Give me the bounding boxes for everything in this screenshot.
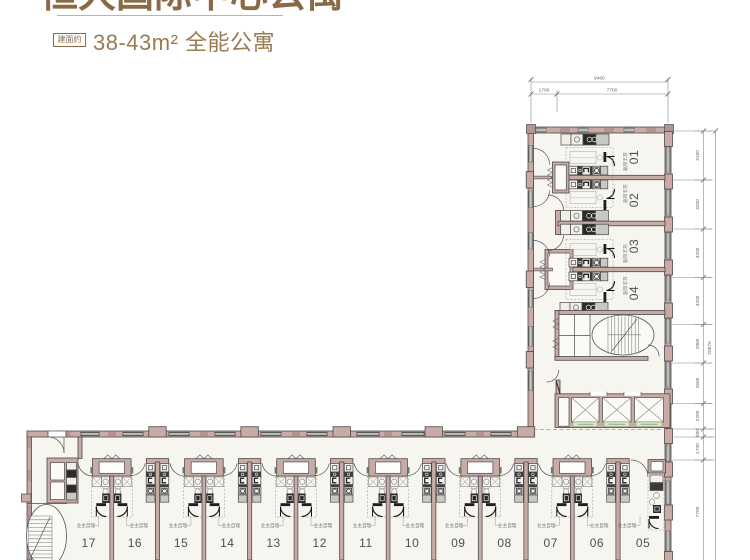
svg-text:07: 07 bbox=[544, 536, 558, 550]
svg-text:业主自理: 业主自理 bbox=[445, 522, 464, 529]
svg-text:业主自理: 业主自理 bbox=[77, 522, 96, 529]
svg-text:业主自理: 业主自理 bbox=[622, 276, 629, 295]
svg-text:1700: 1700 bbox=[695, 443, 701, 454]
svg-text:02: 02 bbox=[627, 193, 641, 207]
svg-text:7700: 7700 bbox=[695, 506, 701, 517]
svg-text:3200: 3200 bbox=[695, 247, 701, 258]
svg-text:13: 13 bbox=[266, 536, 280, 550]
svg-text:2200: 2200 bbox=[695, 410, 701, 421]
svg-text:14: 14 bbox=[220, 536, 234, 550]
svg-text:业主自理: 业主自理 bbox=[353, 522, 372, 529]
svg-text:业主自理: 业主自理 bbox=[130, 522, 149, 529]
svg-text:20570: 20570 bbox=[707, 341, 713, 355]
svg-text:业主自理: 业主自理 bbox=[261, 522, 280, 529]
svg-text:17: 17 bbox=[82, 536, 96, 550]
svg-text:9400: 9400 bbox=[594, 76, 605, 82]
svg-text:11: 11 bbox=[359, 536, 372, 550]
svg-text:2850: 2850 bbox=[695, 338, 701, 349]
svg-text:3150: 3150 bbox=[695, 150, 701, 161]
svg-text:业主自理: 业主自理 bbox=[314, 522, 333, 529]
svg-text:业主自理: 业主自理 bbox=[169, 522, 188, 529]
svg-text:500: 500 bbox=[695, 429, 701, 437]
svg-text:05: 05 bbox=[636, 536, 650, 550]
svg-text:业主自理: 业主自理 bbox=[537, 522, 556, 529]
svg-text:10: 10 bbox=[405, 536, 419, 550]
svg-text:7700: 7700 bbox=[607, 88, 618, 94]
svg-text:业主自理: 业主自理 bbox=[622, 184, 629, 203]
svg-text:03: 03 bbox=[627, 239, 641, 253]
svg-text:12: 12 bbox=[313, 536, 327, 550]
svg-text:业主自理: 业主自理 bbox=[222, 522, 241, 529]
svg-text:04: 04 bbox=[627, 286, 641, 300]
svg-text:业主自理: 业主自理 bbox=[618, 522, 637, 529]
svg-text:08: 08 bbox=[497, 536, 511, 550]
svg-text:06: 06 bbox=[590, 536, 604, 550]
svg-text:业主自理: 业主自理 bbox=[498, 522, 517, 529]
svg-text:业主自理: 业主自理 bbox=[590, 522, 609, 529]
svg-text:15: 15 bbox=[174, 536, 188, 550]
svg-text:09: 09 bbox=[451, 536, 465, 550]
svg-text:业主自理: 业主自理 bbox=[622, 244, 629, 263]
svg-text:3200: 3200 bbox=[695, 295, 701, 306]
svg-text:1700: 1700 bbox=[539, 88, 550, 94]
svg-text:2600: 2600 bbox=[695, 377, 701, 388]
svg-text:业主自理: 业主自理 bbox=[406, 522, 425, 529]
svg-text:01: 01 bbox=[627, 150, 641, 164]
svg-text:16: 16 bbox=[128, 536, 142, 550]
svg-text:业主自理: 业主自理 bbox=[622, 152, 629, 171]
svg-text:3200: 3200 bbox=[695, 199, 701, 210]
